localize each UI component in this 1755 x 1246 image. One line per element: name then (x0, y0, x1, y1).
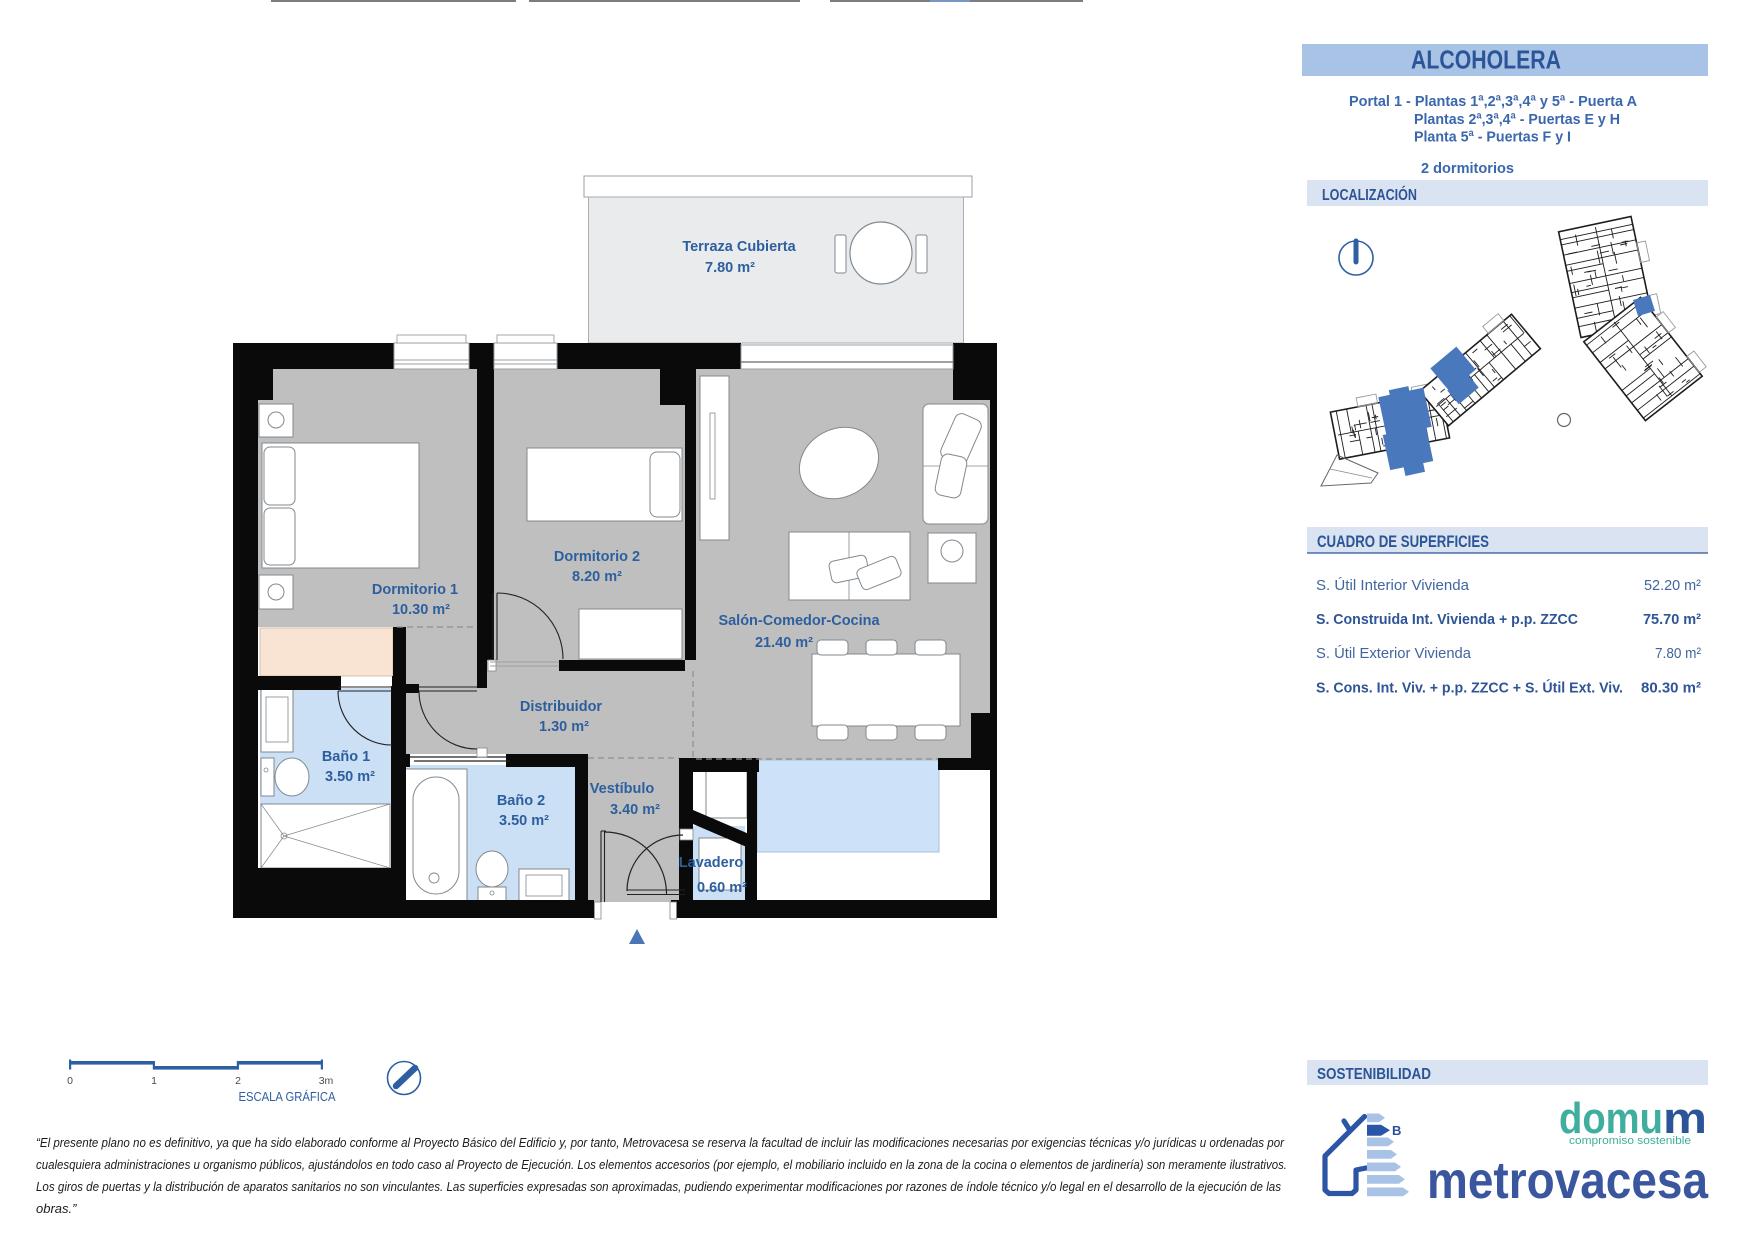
svg-text:3.40 m²: 3.40 m² (610, 802, 660, 818)
svg-text:compromiso sostenible: compromiso sostenible (1569, 1135, 1691, 1147)
svg-text:CUADRO DE SUPERFICIES: CUADRO DE SUPERFICIES (1317, 533, 1489, 551)
svg-text:LOCALIZACIÓN: LOCALIZACIÓN (1322, 185, 1417, 204)
svg-text:1: 1 (151, 1075, 157, 1087)
svg-text:“El presente plano no es defin: “El presente plano no es definitivo, ya … (36, 1135, 1285, 1150)
svg-text:Dormitorio 1: Dormitorio 1 (372, 582, 458, 598)
svg-text:B: B (1392, 1123, 1401, 1138)
svg-text:metrovacesa: metrovacesa (1427, 1152, 1709, 1210)
svg-text:Lavadero: Lavadero (679, 855, 744, 871)
svg-text:21.40 m²: 21.40 m² (755, 635, 813, 651)
svg-text:3.50 m²: 3.50 m² (325, 769, 375, 785)
svg-text:S. Construida Int. Vivienda +: S. Construida Int. Vivienda + p.p. ZZCC (1316, 611, 1578, 628)
svg-text:Portal 1 - Plantas 1ª,2ª,3ª,4ª: Portal 1 - Plantas 1ª,2ª,3ª,4ª y 5ª - Pu… (1349, 93, 1637, 110)
svg-text:10.30 m²: 10.30 m² (392, 602, 450, 618)
svg-text:75.70 m²: 75.70 m² (1643, 611, 1701, 628)
svg-text:Baño 2: Baño 2 (497, 793, 545, 809)
svg-text:0.60 m²: 0.60 m² (697, 880, 747, 896)
svg-text:S. Cons. Int. Viv. + p.p. ZZCC: S. Cons. Int. Viv. + p.p. ZZCC + S. Útil… (1316, 679, 1623, 697)
svg-text:Baño 1: Baño 1 (322, 749, 370, 765)
svg-text:Vestíbulo: Vestíbulo (590, 781, 655, 797)
svg-text:Los giros de puertas y la dist: Los giros de puertas y la distribución d… (36, 1179, 1281, 1194)
svg-text:7.80 m²: 7.80 m² (705, 260, 755, 276)
svg-text:Planta 5ª - Puertas F y I: Planta 5ª - Puertas F y I (1414, 129, 1571, 146)
svg-text:7.80 m²: 7.80 m² (1655, 645, 1701, 662)
svg-text:2 dormitorios: 2 dormitorios (1421, 160, 1514, 177)
svg-text:Dormitorio 2: Dormitorio 2 (554, 549, 640, 565)
svg-text:S. Útil Interior Vivienda: S. Útil Interior Vivienda (1316, 577, 1470, 594)
svg-text:3m: 3m (319, 1075, 334, 1087)
svg-text:obras.”: obras.” (36, 1201, 77, 1216)
svg-text:1.30 m²: 1.30 m² (539, 719, 589, 735)
svg-text:Distribuidor: Distribuidor (520, 699, 603, 715)
svg-text:Plantas 2ª,3ª,4ª - Puertas E y: Plantas 2ª,3ª,4ª - Puertas E y H (1414, 111, 1620, 128)
svg-text:SOSTENIBILIDAD: SOSTENIBILIDAD (1317, 1066, 1431, 1083)
svg-text:cualesquiera administraciones: cualesquiera administraciones u organism… (36, 1157, 1287, 1172)
svg-text:S. Útil Exterior Vivienda: S. Útil Exterior Vivienda (1316, 645, 1472, 662)
svg-text:Salón-Comedor-Cocina: Salón-Comedor-Cocina (718, 613, 880, 629)
svg-text:8.20 m²: 8.20 m² (572, 569, 622, 585)
svg-text:2: 2 (235, 1075, 241, 1087)
svg-text:0: 0 (67, 1075, 73, 1087)
svg-text:ESCALA GRÁFICA: ESCALA GRÁFICA (239, 1089, 336, 1104)
svg-text:ALCOHOLERA: ALCOHOLERA (1411, 45, 1561, 75)
svg-text:80.30 m²: 80.30 m² (1641, 680, 1701, 697)
svg-text:3.50 m²: 3.50 m² (499, 813, 549, 829)
svg-text:52.20 m²: 52.20 m² (1644, 577, 1701, 594)
svg-text:Terraza Cubierta: Terraza Cubierta (682, 239, 796, 255)
